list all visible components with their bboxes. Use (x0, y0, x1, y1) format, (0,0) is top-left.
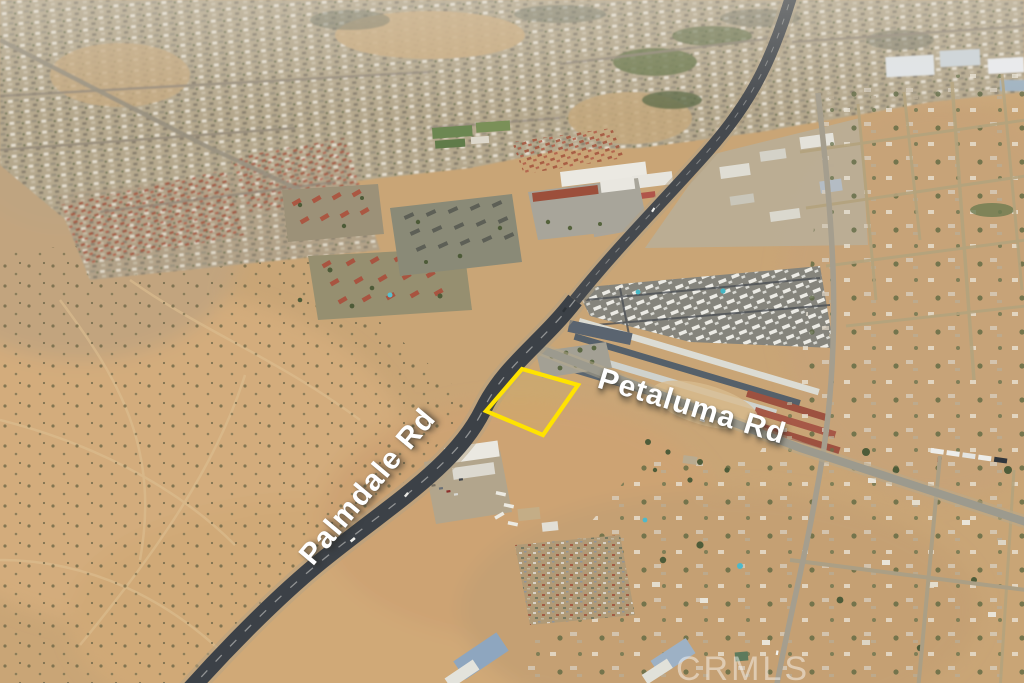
crmls-watermark: CRMLS (676, 650, 810, 683)
aerial-scene (0, 0, 1024, 683)
aerial-photo: Palmdale Rd Petaluma Rd CRMLS (0, 0, 1024, 683)
distance-haze (0, 0, 1024, 115)
